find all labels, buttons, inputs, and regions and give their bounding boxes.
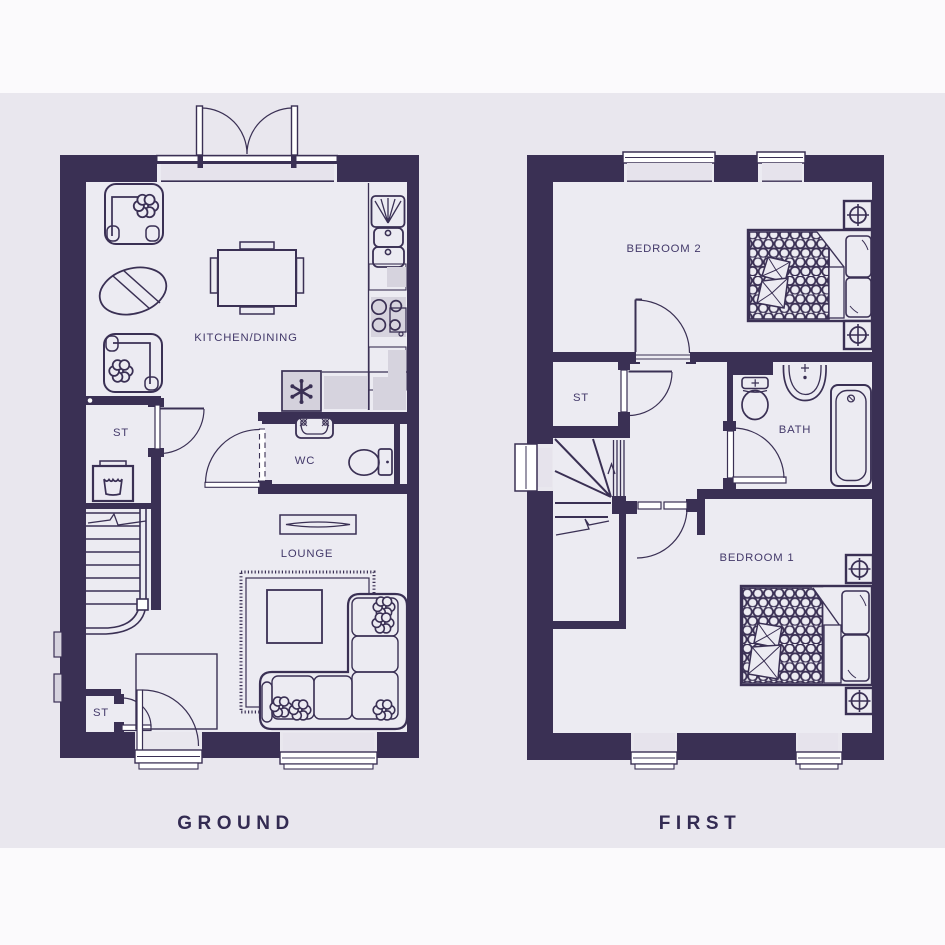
svg-text:ST: ST bbox=[113, 427, 129, 439]
svg-text:LOUNGE: LOUNGE bbox=[281, 548, 334, 560]
svg-text:WC: WC bbox=[295, 455, 315, 467]
svg-text:BEDROOM 2: BEDROOM 2 bbox=[627, 243, 702, 255]
svg-text:ST: ST bbox=[573, 392, 589, 404]
svg-text:BEDROOM 1: BEDROOM 1 bbox=[720, 552, 795, 564]
svg-text:ST: ST bbox=[93, 707, 109, 719]
svg-text:BATH: BATH bbox=[779, 424, 812, 436]
svg-text:FIRST: FIRST bbox=[659, 813, 741, 834]
svg-text:GROUND: GROUND bbox=[177, 813, 294, 834]
svg-text:KITCHEN/DINING: KITCHEN/DINING bbox=[194, 332, 297, 344]
